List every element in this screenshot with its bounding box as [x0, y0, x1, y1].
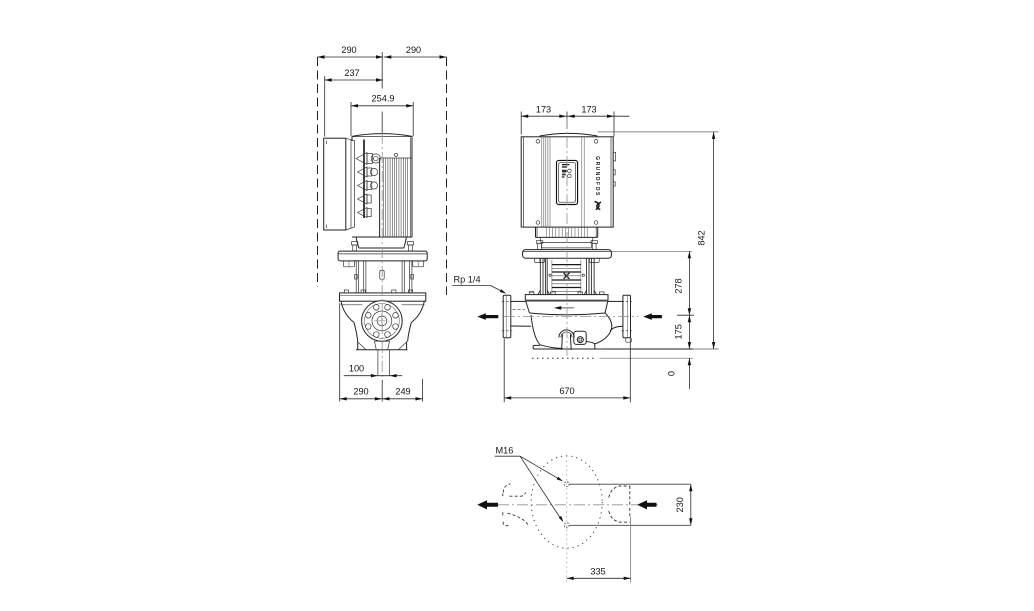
svg-text:842: 842 — [696, 230, 706, 245]
svg-text:290: 290 — [341, 45, 356, 55]
svg-text:230: 230 — [675, 497, 685, 512]
svg-text:173: 173 — [536, 104, 551, 114]
svg-text:100: 100 — [349, 363, 364, 373]
svg-text:290: 290 — [353, 387, 368, 397]
svg-text:670: 670 — [559, 386, 574, 396]
svg-text:335: 335 — [590, 566, 605, 576]
svg-text:290: 290 — [406, 45, 421, 55]
svg-text:278: 278 — [674, 278, 684, 293]
svg-text:GRUNDFOS: GRUNDFOS — [594, 156, 600, 197]
svg-text:254.9: 254.9 — [372, 94, 395, 104]
svg-text:175: 175 — [674, 324, 684, 339]
svg-text:Rp 1/4: Rp 1/4 — [454, 274, 481, 284]
svg-text:173: 173 — [581, 104, 596, 114]
svg-text:M16: M16 — [496, 445, 514, 455]
svg-text:237: 237 — [344, 68, 359, 78]
svg-text:0: 0 — [667, 371, 677, 376]
svg-text:249: 249 — [395, 387, 410, 397]
